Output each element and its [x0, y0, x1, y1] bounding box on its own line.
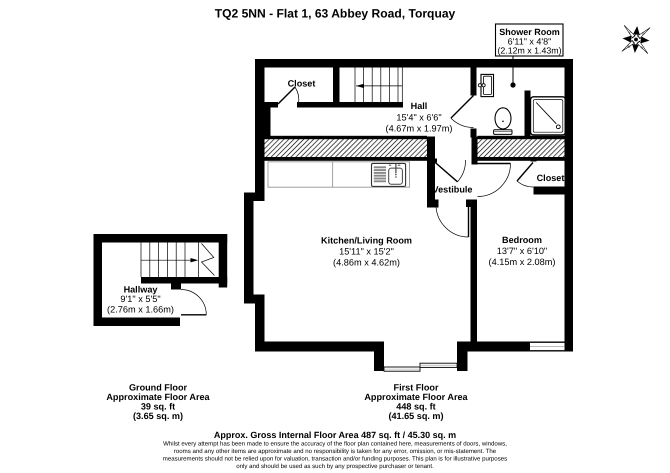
svg-text:measurements should not be rel: measurements should not be relied upon f… [163, 456, 507, 463]
svg-text:(41.65 sq. m): (41.65 sq. m) [388, 411, 443, 421]
svg-text:15'11" x 15'2": 15'11" x 15'2" [339, 247, 394, 257]
svg-text:(4.67m x 1.97m): (4.67m x 1.97m) [386, 124, 453, 134]
svg-text:Closet: Closet [537, 173, 565, 183]
svg-text:Vestibule: Vestibule [433, 185, 473, 195]
svg-text:(2.12m x 1.43m): (2.12m x 1.43m) [497, 46, 561, 56]
svg-text:First Floor: First Floor [394, 383, 439, 393]
svg-text:Shower Room: Shower Room [499, 27, 560, 37]
svg-text:Ground Floor: Ground Floor [129, 383, 188, 393]
svg-text:Hall: Hall [411, 101, 428, 111]
svg-text:only and should be used as suc: only and should be used as such by any p… [236, 463, 434, 470]
svg-text:(3.65 sq. m): (3.65 sq. m) [133, 411, 183, 421]
svg-text:39 sq. ft: 39 sq. ft [141, 402, 175, 412]
svg-text:(4.86m x 4.62m): (4.86m x 4.62m) [333, 258, 400, 268]
svg-text:rooms and any other items are: rooms and any other items are approximat… [174, 448, 497, 455]
svg-text:Approximate Floor Area: Approximate Floor Area [106, 392, 210, 402]
svg-text:TQ2 5NN - Flat 1, 63 Abbey Roa: TQ2 5NN - Flat 1, 63 Abbey Road, Torquay [215, 7, 456, 21]
svg-text:448 sq. ft: 448 sq. ft [396, 402, 435, 412]
svg-text:Approx. Gross Internal Floor A: Approx. Gross Internal Floor Area 487 sq… [214, 430, 456, 440]
svg-text:Hallway: Hallway [124, 284, 159, 294]
svg-text:Kitchen/Living Room: Kitchen/Living Room [321, 236, 412, 246]
svg-text:Approximate Floor Area: Approximate Floor Area [364, 392, 468, 402]
svg-text:Closet: Closet [288, 79, 316, 89]
svg-text:13'7" x 6'10": 13'7" x 6'10" [497, 246, 547, 256]
svg-text:Bedroom: Bedroom [502, 235, 542, 245]
svg-text:Whilst every attempt has been: Whilst every attempt has been made to en… [163, 441, 507, 448]
svg-text:(4.15m x 2.08m): (4.15m x 2.08m) [489, 257, 556, 267]
svg-text:15'4" x 6'6": 15'4" x 6'6" [396, 112, 441, 122]
svg-text:9'1" x 5'5": 9'1" x 5'5" [120, 294, 160, 304]
svg-text:(2.76m x 1.66m): (2.76m x 1.66m) [107, 305, 174, 315]
